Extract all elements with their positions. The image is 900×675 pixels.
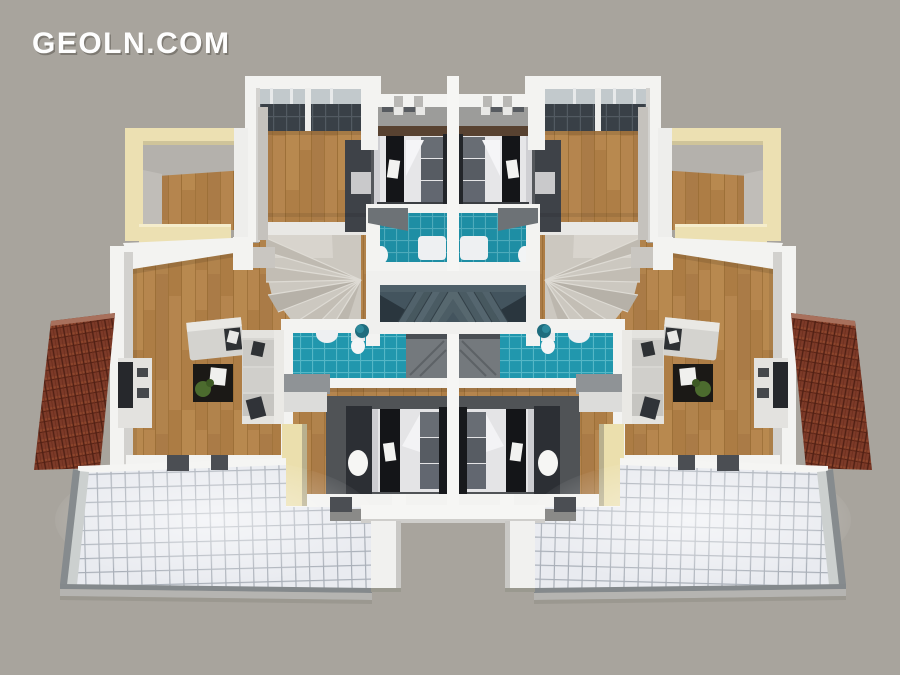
svg-text:GEOLN.COM: GEOLN.COM	[32, 27, 231, 60]
